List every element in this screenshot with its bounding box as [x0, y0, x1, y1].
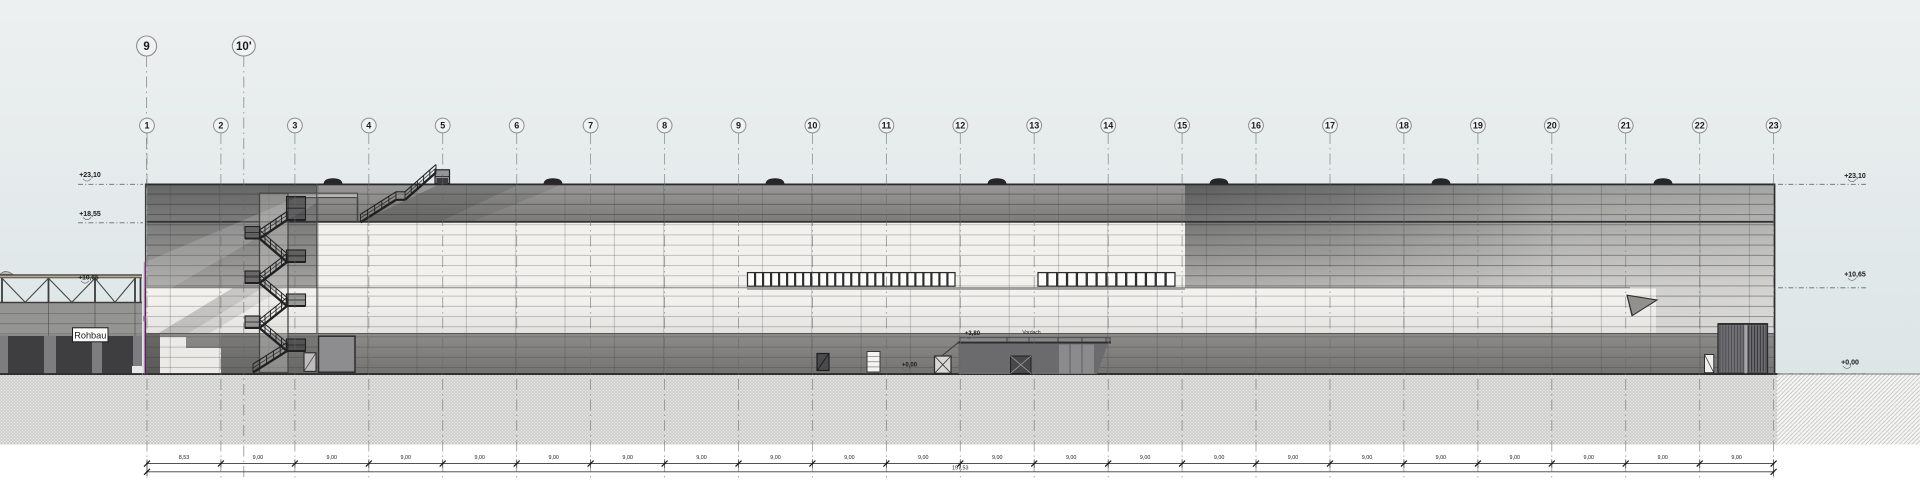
svg-text:9,00: 9,00 — [1436, 455, 1447, 461]
svg-text:+0,00: +0,00 — [902, 362, 918, 368]
svg-text:197,53: 197,53 — [952, 466, 969, 472]
svg-text:7: 7 — [588, 121, 593, 131]
svg-text:8,53: 8,53 — [179, 455, 190, 461]
svg-text:12: 12 — [955, 121, 965, 131]
svg-text:9,00: 9,00 — [918, 455, 929, 461]
svg-text:9,00: 9,00 — [1140, 455, 1151, 461]
svg-text:11: 11 — [882, 121, 892, 131]
svg-text:4: 4 — [366, 121, 371, 131]
svg-text:9,00: 9,00 — [1066, 455, 1077, 461]
svg-text:+0,00: +0,00 — [1841, 360, 1859, 367]
svg-text:10': 10' — [236, 41, 252, 53]
svg-text:9,00: 9,00 — [1657, 455, 1668, 461]
svg-text:9,00: 9,00 — [548, 455, 559, 461]
svg-text:+10,65: +10,65 — [78, 275, 99, 282]
svg-text:9: 9 — [736, 121, 741, 131]
svg-text:8: 8 — [662, 121, 667, 131]
svg-text:+3,80: +3,80 — [965, 331, 981, 337]
svg-text:9,00: 9,00 — [327, 455, 338, 461]
svg-text:2: 2 — [218, 121, 223, 131]
svg-text:Vordach: Vordach — [1022, 330, 1041, 336]
svg-text:18: 18 — [1399, 121, 1409, 131]
svg-text:6: 6 — [514, 121, 519, 131]
svg-text:+23,10: +23,10 — [79, 172, 101, 179]
svg-text:+18,55: +18,55 — [79, 211, 101, 218]
svg-text:9,00: 9,00 — [253, 455, 264, 461]
svg-text:9,00: 9,00 — [1288, 455, 1299, 461]
svg-text:9,00: 9,00 — [844, 455, 855, 461]
svg-text:3: 3 — [292, 121, 297, 131]
svg-text:19: 19 — [1473, 121, 1483, 131]
svg-text:Rohbau: Rohbau — [74, 331, 106, 341]
svg-text:17: 17 — [1325, 121, 1335, 131]
svg-text:13: 13 — [1029, 121, 1039, 131]
svg-text:23: 23 — [1769, 121, 1779, 131]
svg-text:+23,10: +23,10 — [1844, 173, 1866, 180]
svg-text:15: 15 — [1177, 121, 1187, 131]
svg-text:1: 1 — [144, 121, 149, 131]
svg-text:9,00: 9,00 — [1510, 455, 1521, 461]
svg-text:20: 20 — [1547, 121, 1557, 131]
svg-text:5: 5 — [440, 121, 445, 131]
svg-text:16: 16 — [1251, 121, 1261, 131]
svg-text:9,00: 9,00 — [1731, 455, 1742, 461]
svg-text:9,00: 9,00 — [696, 455, 707, 461]
svg-text:9,00: 9,00 — [1362, 455, 1373, 461]
svg-text:9,00: 9,00 — [401, 455, 412, 461]
svg-text:22: 22 — [1695, 121, 1705, 131]
svg-text:9: 9 — [143, 41, 149, 53]
svg-text:9,00: 9,00 — [622, 455, 633, 461]
svg-text:9,00: 9,00 — [770, 455, 781, 461]
svg-text:9,00: 9,00 — [1584, 455, 1595, 461]
svg-text:+10,65: +10,65 — [1844, 272, 1866, 279]
svg-text:21: 21 — [1621, 121, 1631, 131]
svg-text:14: 14 — [1103, 121, 1113, 131]
svg-text:9,00: 9,00 — [474, 455, 485, 461]
svg-text:10: 10 — [807, 121, 817, 131]
svg-text:9,00: 9,00 — [1214, 455, 1225, 461]
svg-text:9,00: 9,00 — [992, 455, 1003, 461]
